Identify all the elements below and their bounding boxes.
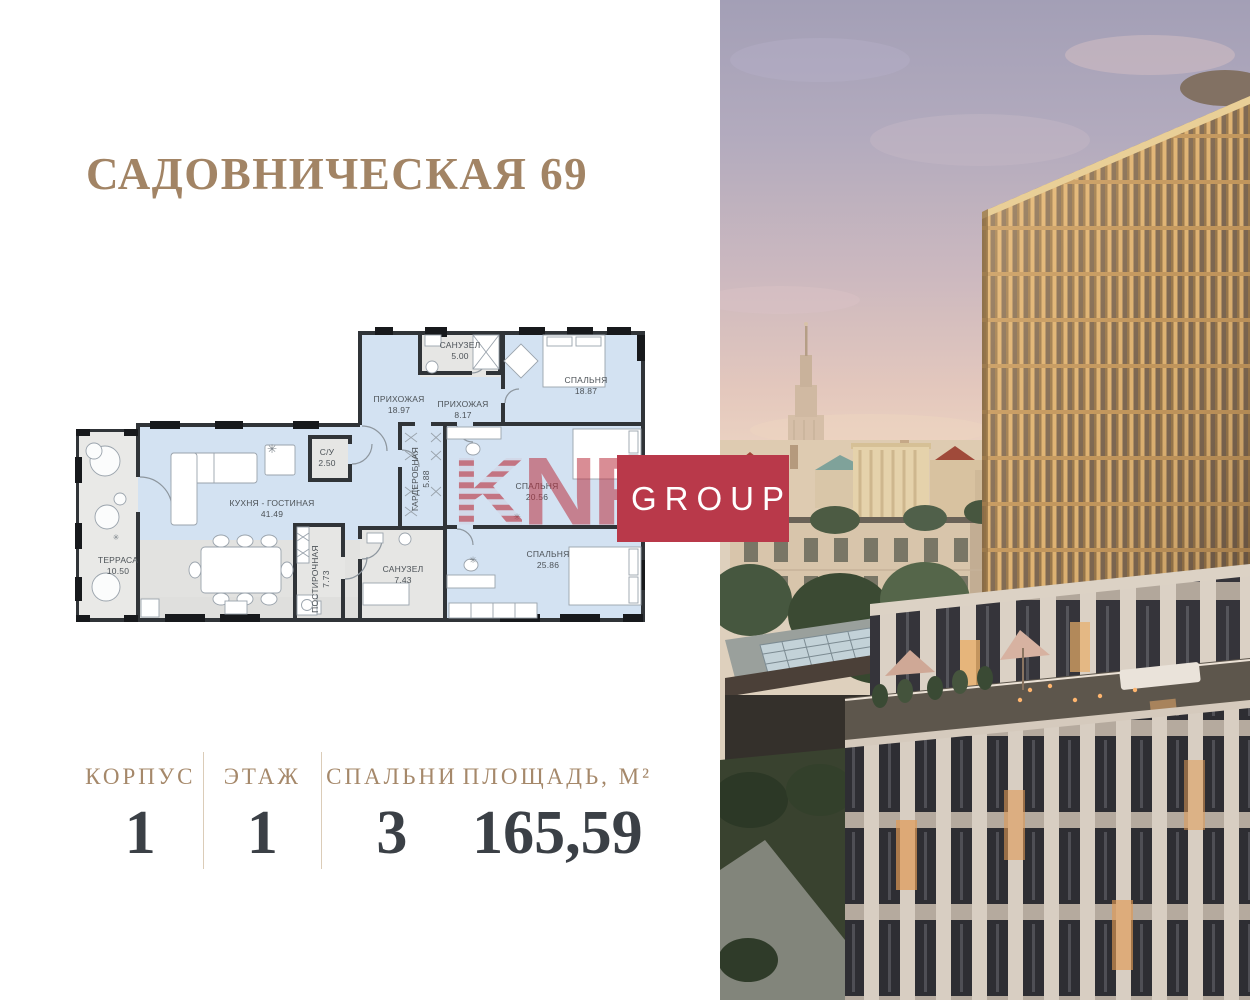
stat-spalni-label: СПАЛЬНИ bbox=[326, 764, 458, 790]
stat-ploshchad-label: ПЛОЩАДЬ, М² bbox=[463, 764, 652, 790]
floor-plan: ✳ ✳ ✳ ✳ ПРИХОЖАЯ18.97 САНУЗЕЛ5.00 СПАЛЬН… bbox=[75, 327, 650, 627]
stat-korpus-label: КОРПУС bbox=[85, 764, 195, 790]
stats-row: КОРПУС 1 ЭТАЖ 1 СПАЛЬНИ 3 ПЛОЩАДЬ, М² 16… bbox=[78, 752, 653, 869]
stat-etazh: ЭТАЖ 1 bbox=[204, 752, 323, 869]
flyer-page: САДОВНИЧЕСКАЯ 69 bbox=[0, 0, 1250, 1000]
floor-plan-drawing: ✳ ✳ ✳ ✳ bbox=[75, 327, 650, 627]
chandelier-icon: ✳ bbox=[469, 555, 477, 565]
building-photo-art bbox=[720, 0, 1250, 1000]
building-photo bbox=[720, 0, 1250, 1000]
stat-ploshchad: ПЛОЩАДЬ, М² 165,59 bbox=[462, 752, 653, 869]
chandelier-icon: ✳ bbox=[267, 442, 277, 456]
stat-etazh-value: 1 bbox=[247, 798, 278, 869]
stat-etazh-label: ЭТАЖ bbox=[224, 764, 301, 790]
stat-korpus: КОРПУС 1 bbox=[78, 752, 204, 869]
courtyard bbox=[720, 748, 854, 1000]
project-title: САДОВНИЧЕСКАЯ 69 bbox=[86, 148, 686, 200]
stat-korpus-value: 1 bbox=[125, 798, 156, 869]
stat-spalni: СПАЛЬНИ 3 bbox=[322, 752, 462, 869]
chandelier-icon: ✳ bbox=[513, 512, 521, 522]
stat-ploshchad-value: 165,59 bbox=[472, 798, 643, 869]
foreground-building bbox=[845, 564, 1250, 1000]
plant-icon: ✳ bbox=[113, 533, 120, 542]
stat-spalni-value: 3 bbox=[376, 798, 407, 869]
